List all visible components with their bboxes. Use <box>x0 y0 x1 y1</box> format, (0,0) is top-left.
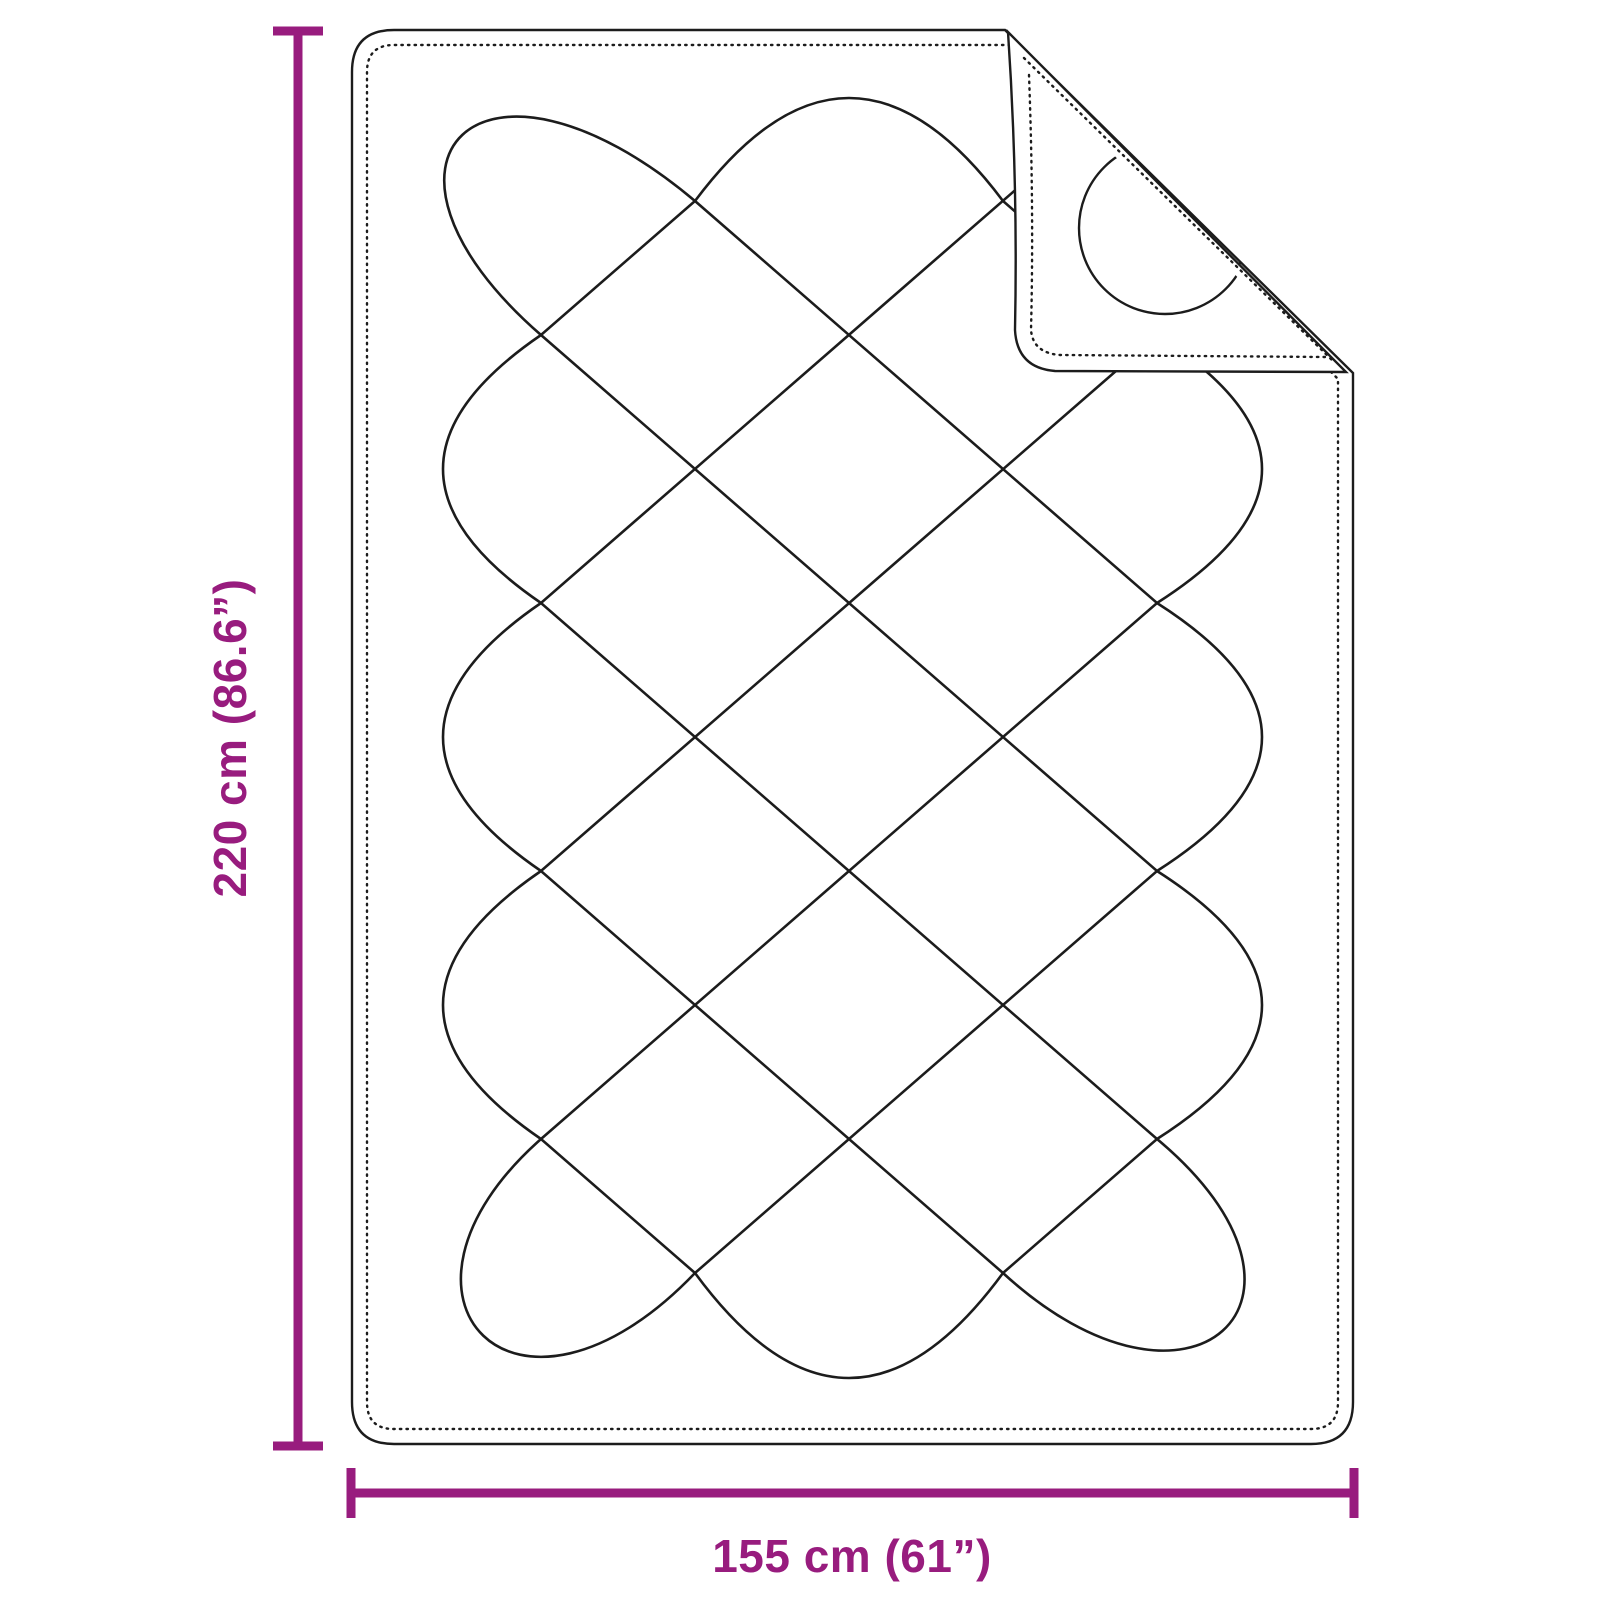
height-dimension: 220 cm (86.6”) <box>204 31 323 1446</box>
width-dimension: 155 cm (61”) <box>351 1468 1354 1582</box>
blanket-diagram-canvas: 220 cm (86.6”) 155 cm (61”) <box>0 0 1600 1600</box>
folded-corner-flap <box>1008 32 1346 372</box>
width-dimension-label: 155 cm (61”) <box>712 1530 992 1582</box>
flap-outline <box>1008 32 1346 372</box>
product-dimension-diagram: 220 cm (86.6”) 155 cm (61”) <box>0 0 1600 1600</box>
height-dimension-label: 220 cm (86.6”) <box>204 579 256 898</box>
